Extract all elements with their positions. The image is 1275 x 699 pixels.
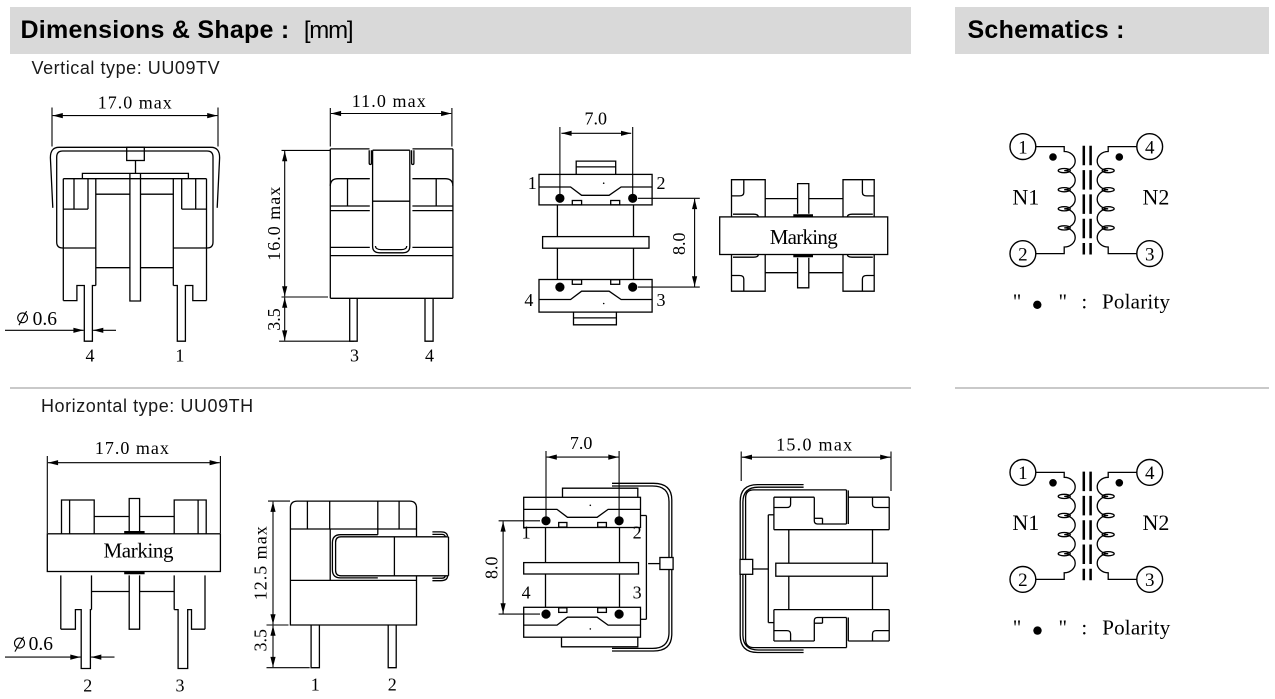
svg-text:3: 3 <box>633 583 642 603</box>
svg-text:4: 4 <box>425 346 434 366</box>
svg-text:17.0 max: 17.0 max <box>98 93 172 113</box>
svg-text:Polarity: Polarity <box>1102 290 1171 314</box>
svg-text:3: 3 <box>176 676 185 696</box>
svg-text::: : <box>1081 290 1087 314</box>
svg-text:3: 3 <box>350 346 359 366</box>
svg-text:": " <box>1059 290 1068 314</box>
svg-text:12.5 max: 12.5 max <box>250 526 270 600</box>
svg-text:8.0: 8.0 <box>481 557 501 580</box>
svg-text:Marking: Marking <box>104 538 175 562</box>
svg-text:4: 4 <box>1145 463 1155 484</box>
svg-text:2: 2 <box>1018 570 1028 591</box>
svg-text:N2: N2 <box>1142 510 1169 535</box>
svg-text:1: 1 <box>175 346 184 366</box>
svg-text:": " <box>1059 615 1068 639</box>
svg-text:2: 2 <box>388 674 397 694</box>
svg-text:4: 4 <box>524 290 533 310</box>
svg-text:1: 1 <box>1018 137 1028 158</box>
svg-text:N2: N2 <box>1142 184 1169 209</box>
svg-text:2: 2 <box>657 173 666 193</box>
svg-text:15.0 max: 15.0 max <box>776 435 852 455</box>
svg-text:Polarity: Polarity <box>1102 615 1171 639</box>
svg-text:1: 1 <box>528 173 537 193</box>
svg-text:0.6: 0.6 <box>33 309 58 330</box>
svg-text:4: 4 <box>522 583 531 603</box>
svg-text:2: 2 <box>83 676 92 696</box>
svg-text:3.5: 3.5 <box>264 308 284 331</box>
svg-text::: : <box>1081 615 1087 639</box>
svg-text:3.5: 3.5 <box>250 629 270 652</box>
svg-text:Marking: Marking <box>770 225 839 249</box>
svg-text:7.0: 7.0 <box>585 109 608 129</box>
svg-text:1: 1 <box>522 523 531 543</box>
svg-text:": " <box>1013 290 1022 314</box>
svg-text:17.0 max: 17.0 max <box>95 438 169 458</box>
svg-text:3: 3 <box>1145 244 1155 265</box>
svg-text:11.0 max: 11.0 max <box>352 91 426 111</box>
svg-text:0.6: 0.6 <box>29 634 54 655</box>
svg-text:3: 3 <box>657 290 666 310</box>
svg-text:1: 1 <box>311 674 320 694</box>
svg-text:4: 4 <box>86 346 95 366</box>
svg-text:3: 3 <box>1145 570 1155 591</box>
svg-text:16.0 max: 16.0 max <box>264 187 284 261</box>
svg-text:N1: N1 <box>1012 184 1039 209</box>
svg-text:2: 2 <box>633 523 642 543</box>
svg-text:4: 4 <box>1145 137 1155 158</box>
svg-text:2: 2 <box>1018 244 1028 265</box>
svg-text:": " <box>1013 615 1022 639</box>
svg-text:1: 1 <box>1018 463 1028 484</box>
svg-text:N1: N1 <box>1012 510 1039 535</box>
svg-text:7.0: 7.0 <box>570 433 593 453</box>
svg-text:8.0: 8.0 <box>669 233 689 256</box>
